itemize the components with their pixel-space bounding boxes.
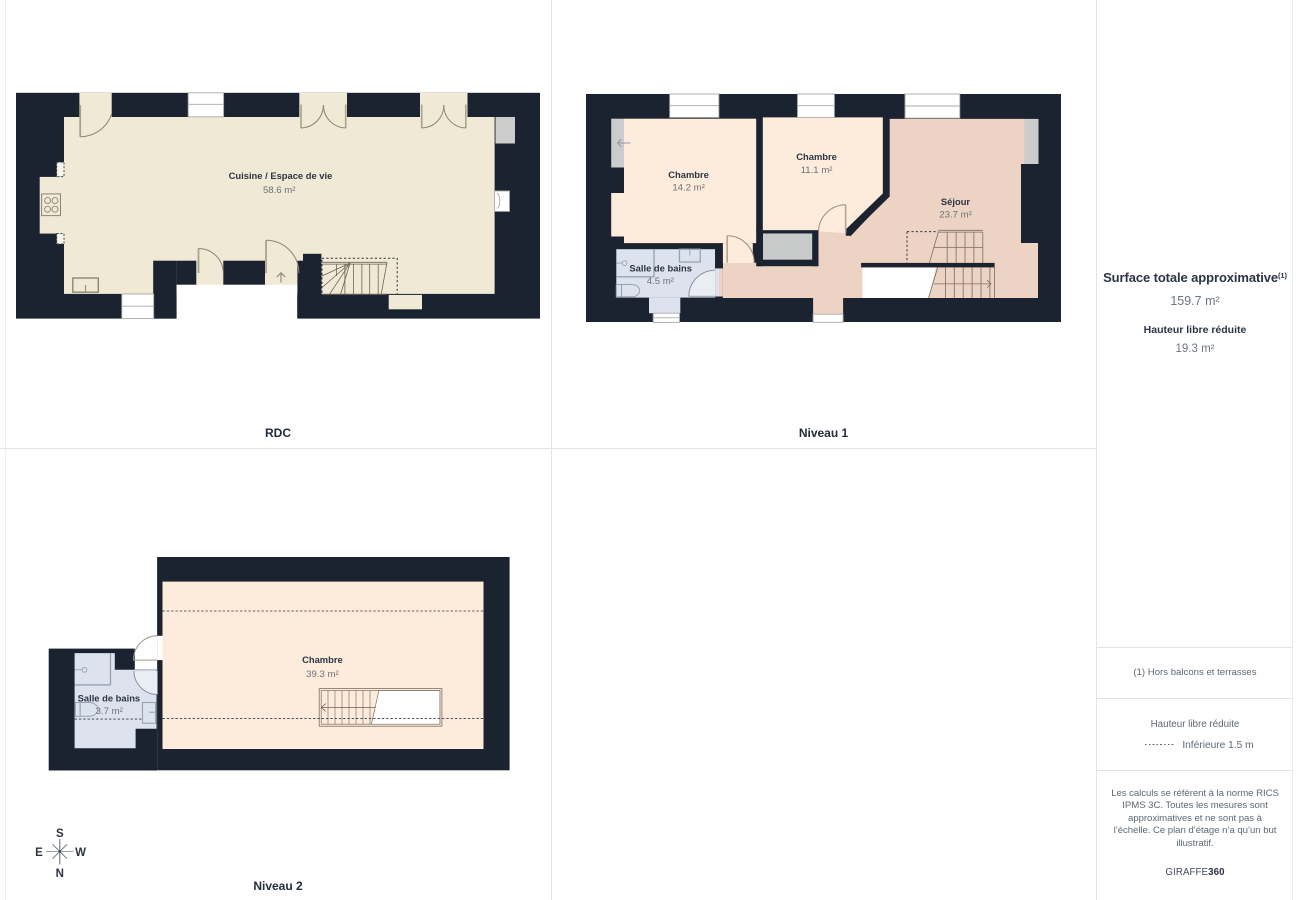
svg-text:Salle de bains: Salle de bains (629, 262, 692, 273)
svg-text:Chambre: Chambre (668, 169, 709, 180)
svg-text:14.2 m²: 14.2 m² (672, 183, 705, 194)
svg-text:Séjour: Séjour (941, 196, 971, 207)
svg-text:4.5 m²: 4.5 m² (647, 276, 675, 287)
svg-text:3.7 m²: 3.7 m² (96, 706, 124, 717)
svg-text:Salle de bains: Salle de bains (78, 693, 141, 704)
svg-text:W: W (75, 847, 86, 859)
svg-text:Chambre: Chambre (302, 654, 343, 665)
svg-text:Niveau 2: Niveau 2 (253, 879, 303, 893)
svg-text:11.1 m²: 11.1 m² (801, 165, 834, 176)
svg-text:Niveau 1: Niveau 1 (799, 426, 849, 440)
svg-text:23.7 m²: 23.7 m² (939, 209, 972, 220)
svg-text:N: N (56, 868, 64, 880)
svg-text:E: E (35, 847, 43, 859)
svg-text:58.6 m²: 58.6 m² (263, 185, 296, 196)
svg-text:Chambre: Chambre (796, 151, 837, 162)
svg-text:RDC: RDC (265, 426, 291, 440)
svg-text:S: S (56, 828, 64, 840)
svg-text:Cuisine / Espace de vie: Cuisine / Espace de vie (229, 170, 333, 181)
svg-text:39.3 m²: 39.3 m² (306, 669, 339, 680)
